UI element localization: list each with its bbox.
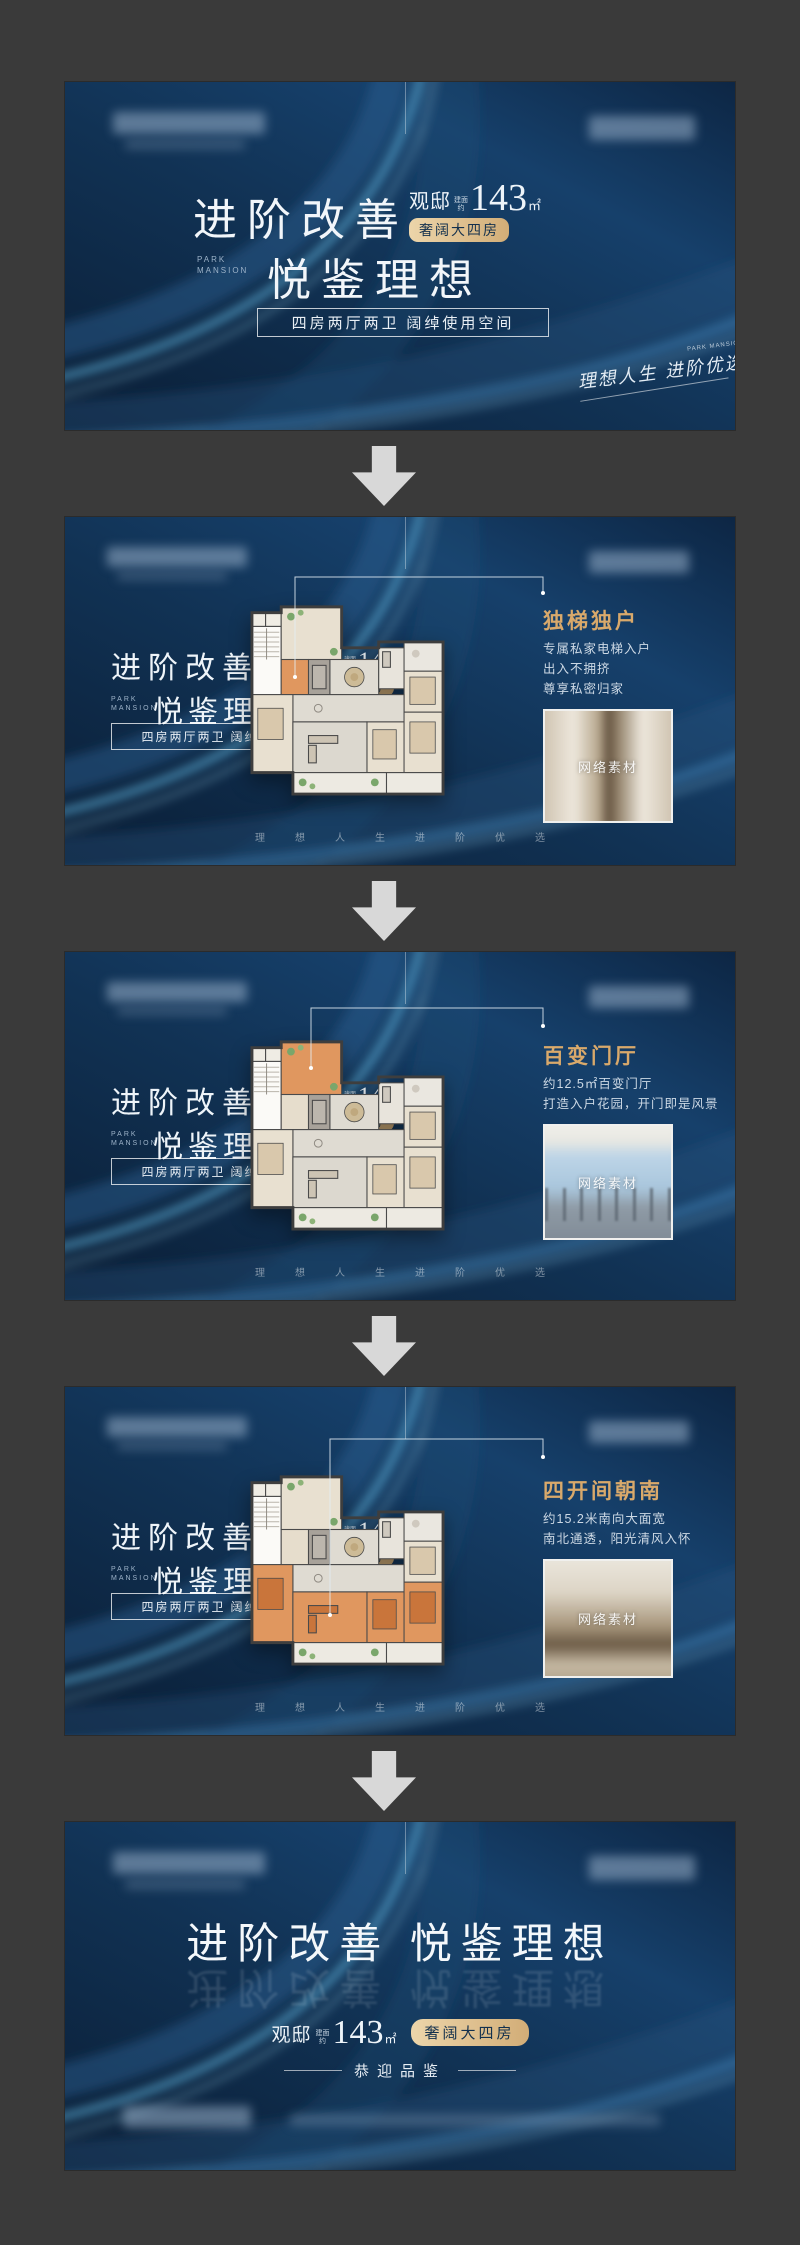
headline-eng: PARK MANSION bbox=[197, 254, 248, 276]
logo-left-blurred bbox=[113, 1852, 265, 1874]
divider-line bbox=[405, 517, 406, 569]
invite-dash-left bbox=[284, 2070, 342, 2071]
headline-eng-line2: MANSION bbox=[111, 1140, 158, 1147]
logo-right-blurred bbox=[589, 986, 689, 1008]
closing-headline-reflection: 进阶改善 悦鉴理想 bbox=[65, 1960, 735, 2021]
feature-line-2: 打造入户花园，开门即是风景 bbox=[543, 1094, 719, 1114]
feature-photo-corridor: 网络素材 bbox=[543, 709, 673, 823]
feature-photo-livingroom: 网络素材 bbox=[543, 1559, 673, 1678]
area-about: 建面 约 bbox=[315, 2029, 329, 2045]
headline-line1: 进阶改善 bbox=[111, 1078, 259, 1122]
down-arrow-4 bbox=[352, 1751, 416, 1811]
logo-left-subline-blurred bbox=[117, 572, 227, 580]
headline-eng-line2: MANSION bbox=[111, 705, 158, 712]
logo-left-subline-blurred bbox=[125, 140, 245, 149]
feature-line-2: 南北通透，阳光清风入怀 bbox=[543, 1529, 692, 1549]
invite-row: 恭迎品鉴 bbox=[65, 2060, 735, 2081]
feature-line-1: 约15.2米南向大面宽 bbox=[543, 1509, 692, 1529]
divider-line bbox=[405, 82, 406, 134]
photo-watermark: 网络素材 bbox=[545, 1561, 671, 1676]
area-cluster: 观邸 建面 约 143 ㎡ bbox=[409, 182, 541, 214]
headline-line1: 进阶改善 bbox=[193, 184, 409, 248]
disclaimer-blurred bbox=[290, 2114, 660, 2126]
area-value: 143 bbox=[470, 182, 527, 214]
headline-eng-line1: PARK bbox=[111, 1566, 138, 1573]
logo-right-blurred bbox=[589, 551, 689, 573]
area-unit: ㎡ bbox=[528, 195, 541, 214]
feature-photo-balcony: 网络素材 bbox=[543, 1124, 673, 1240]
banner-feature-foyer: 进阶改善 观邸 建面约 143 ㎡ 奢阔大四房 PARKMANSION 悦鉴理想… bbox=[65, 952, 735, 1300]
headline-eng-line1: PARK bbox=[111, 696, 138, 703]
banner-feature-south: 进阶改善 观邸 建面约 143 ㎡ 奢阔大四房 PARKMANSION 悦鉴理想… bbox=[65, 1387, 735, 1735]
down-arrow-2 bbox=[352, 881, 416, 941]
poster-sequence: 进阶改善 悦鉴理想 PARK MANSION 观邸 建面 约 143 ㎡ 奢阔大… bbox=[0, 0, 800, 2245]
logo-left-blurred bbox=[113, 112, 265, 134]
area-about-l2: 约 bbox=[458, 204, 465, 212]
feature-line-3: 尊享私密归家 bbox=[543, 679, 651, 699]
logo-left-blurred bbox=[107, 547, 247, 567]
area-about-l2: 约 bbox=[319, 2037, 326, 2045]
logo-right-blurred bbox=[589, 1421, 689, 1443]
headline-eng: PARKMANSION bbox=[111, 695, 158, 713]
logo-left-subline-blurred bbox=[125, 1880, 245, 1889]
logo-right-blurred bbox=[589, 116, 695, 140]
area-about-l1: 建面 bbox=[454, 196, 468, 204]
banner-closing: 进阶改善 悦鉴理想 进阶改善 悦鉴理想 观邸 建面 约 143 ㎡ 奢阔大四房 … bbox=[65, 1822, 735, 2170]
photo-watermark: 网络素材 bbox=[545, 711, 671, 821]
project-name: 观邸 bbox=[271, 2020, 311, 2047]
feature-description: 约15.2米南向大面宽 南北通透，阳光清风入怀 bbox=[543, 1509, 692, 1549]
headline-line1: 进阶改善 bbox=[111, 1513, 259, 1557]
area-about: 建面 约 bbox=[454, 196, 468, 212]
divider-line bbox=[405, 1387, 406, 1439]
headline-eng: PARKMANSION bbox=[111, 1565, 158, 1583]
badge-four-room: 奢阔大四房 bbox=[411, 2019, 529, 2046]
headline-eng-line2: MANSION bbox=[111, 1575, 158, 1582]
down-arrow-1 bbox=[352, 446, 416, 506]
logo-bottom-blurred bbox=[123, 2106, 251, 2128]
invite-dash-right bbox=[458, 2070, 516, 2071]
invite-text: 恭迎品鉴 bbox=[354, 2060, 446, 2081]
feature-line-1: 专属私家电梯入户 bbox=[543, 639, 651, 659]
down-arrow-3 bbox=[352, 1316, 416, 1376]
area-unit: ㎡ bbox=[384, 2030, 396, 2047]
bottom-strip-text: 理想人生进阶优选 bbox=[65, 1699, 735, 1714]
headline-eng-line1: PARK bbox=[111, 1131, 138, 1138]
floor-plan bbox=[250, 1469, 445, 1669]
feature-description: 约12.5㎡百变门厅 打造入户花园，开门即是风景 bbox=[543, 1074, 719, 1114]
logo-left-subline-blurred bbox=[117, 1007, 227, 1015]
divider-line bbox=[405, 1822, 406, 1874]
feature-description: 专属私家电梯入户 出入不拥挤 尊享私密归家 bbox=[543, 639, 651, 699]
feature-line-2: 出入不拥挤 bbox=[543, 659, 651, 679]
bottom-strip-text: 理想人生进阶优选 bbox=[65, 1264, 735, 1279]
closing-area-row: 观邸 建面 约 143 ㎡ 奢阔大四房 bbox=[65, 2018, 735, 2047]
floor-plan bbox=[250, 1034, 445, 1234]
project-name: 观邸 bbox=[409, 185, 451, 214]
divider-line bbox=[405, 952, 406, 1004]
logo-left-blurred bbox=[107, 982, 247, 1002]
headline-eng: PARKMANSION bbox=[111, 1130, 158, 1148]
logo-left-subline-blurred bbox=[117, 1442, 227, 1450]
banner-intro: 进阶改善 悦鉴理想 PARK MANSION 观邸 建面 约 143 ㎡ 奢阔大… bbox=[65, 82, 735, 430]
tagline-box: 四房两厅两卫 阔绰使用空间 bbox=[257, 308, 549, 337]
headline-line1: 进阶改善 bbox=[111, 643, 259, 687]
feature-line-1: 约12.5㎡百变门厅 bbox=[543, 1074, 719, 1094]
feature-title: 百变门厅 bbox=[543, 1040, 639, 1070]
area-value: 143 bbox=[332, 2018, 383, 2047]
feature-title: 四开间朝南 bbox=[543, 1475, 663, 1505]
floor-plan bbox=[250, 599, 445, 799]
area-about-l1: 建面 bbox=[315, 2029, 329, 2037]
headline-eng-line2: MANSION bbox=[197, 266, 248, 275]
logo-right-blurred bbox=[589, 1856, 695, 1880]
badge-four-room: 奢阔大四房 bbox=[409, 218, 509, 242]
headline-eng-line1: PARK bbox=[197, 255, 226, 264]
logo-left-blurred bbox=[107, 1417, 247, 1437]
photo-watermark: 网络素材 bbox=[545, 1126, 671, 1238]
banner-feature-elevator: 进阶改善 观邸 建面约 143 ㎡ 奢阔大四房 PARKMANSION 悦鉴理想… bbox=[65, 517, 735, 865]
bottom-strip-text: 理想人生进阶优选 bbox=[65, 829, 735, 844]
headline-line2: 悦鉴理想 bbox=[267, 244, 483, 308]
feature-title: 独梯独户 bbox=[543, 605, 639, 635]
